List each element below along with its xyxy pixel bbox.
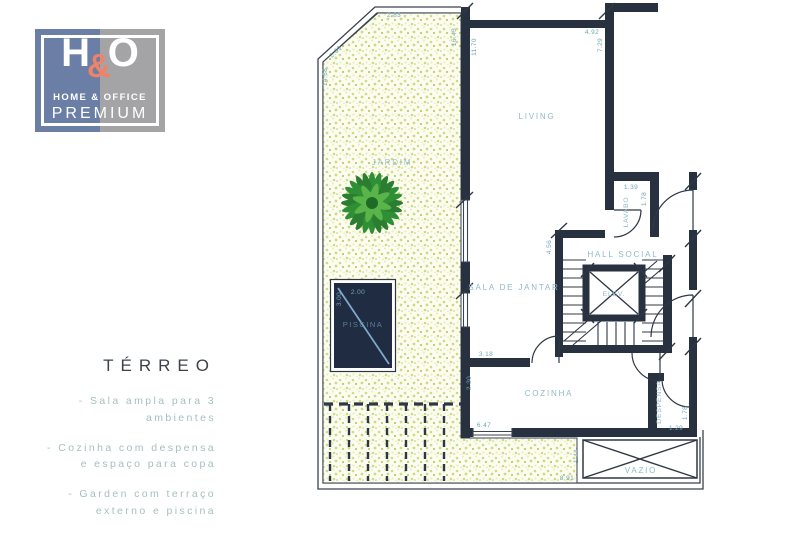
dim-garden-right: 16.43 xyxy=(451,28,458,46)
dim-garden-top: 2.83 xyxy=(387,12,401,19)
garden-area xyxy=(323,13,577,483)
dim-lavabo-width: 1.39 xyxy=(624,184,638,191)
dim-sala-wall: 4.56 xyxy=(546,240,553,254)
room-label-living: LIVING xyxy=(518,112,555,121)
dim-living-right: 7.29 xyxy=(597,38,604,52)
dim-despensa-width: 1.29 xyxy=(669,425,683,432)
dim-despensa-depth: 1.78 xyxy=(682,406,689,420)
room-label-despensa: DESPENSA xyxy=(656,380,663,423)
dim-garden-left: 14.68 xyxy=(322,68,329,86)
room-label-cozinha: COZINHA xyxy=(525,389,574,398)
dim-cozinha-bottom: 6.47 xyxy=(477,422,491,429)
room-label-lavabo: LAVABO xyxy=(623,197,630,228)
room-label-elevator: ELEV. xyxy=(603,291,626,298)
room-label-hall-social: HALL SOCIAL xyxy=(587,250,658,259)
dim-pool-width: 2.00 xyxy=(351,289,365,296)
tree xyxy=(341,172,403,234)
room-label-sala-de-jantar: SALA DE JANTAR xyxy=(468,283,559,292)
dim-living-top: 4.92 xyxy=(585,29,599,36)
room-label-piscina: PISCINA xyxy=(343,320,384,329)
page: { "logo": { "letter_h": "H", "ampersand"… xyxy=(0,0,800,505)
building-walls xyxy=(461,3,697,438)
dim-lavabo-depth: 1.78 xyxy=(641,192,648,206)
dim-cozinha-left: 2.30 xyxy=(466,376,473,390)
room-label-vazio: VAZIO xyxy=(625,466,657,475)
dim-sala-opening: 3.18 xyxy=(479,351,493,358)
dim-terrace-depth: 1.44 xyxy=(573,449,580,463)
dim-pool-length: 3.00 xyxy=(336,292,343,306)
room-label-jardim: JARDIM xyxy=(372,158,413,167)
floor-plan: JARDIM LIVING LAVABO HALL SOCIAL ELEV. S… xyxy=(0,0,800,505)
dim-terrace-width: 8.91 xyxy=(560,475,574,482)
dim-living-left: 11.70 xyxy=(471,38,478,56)
